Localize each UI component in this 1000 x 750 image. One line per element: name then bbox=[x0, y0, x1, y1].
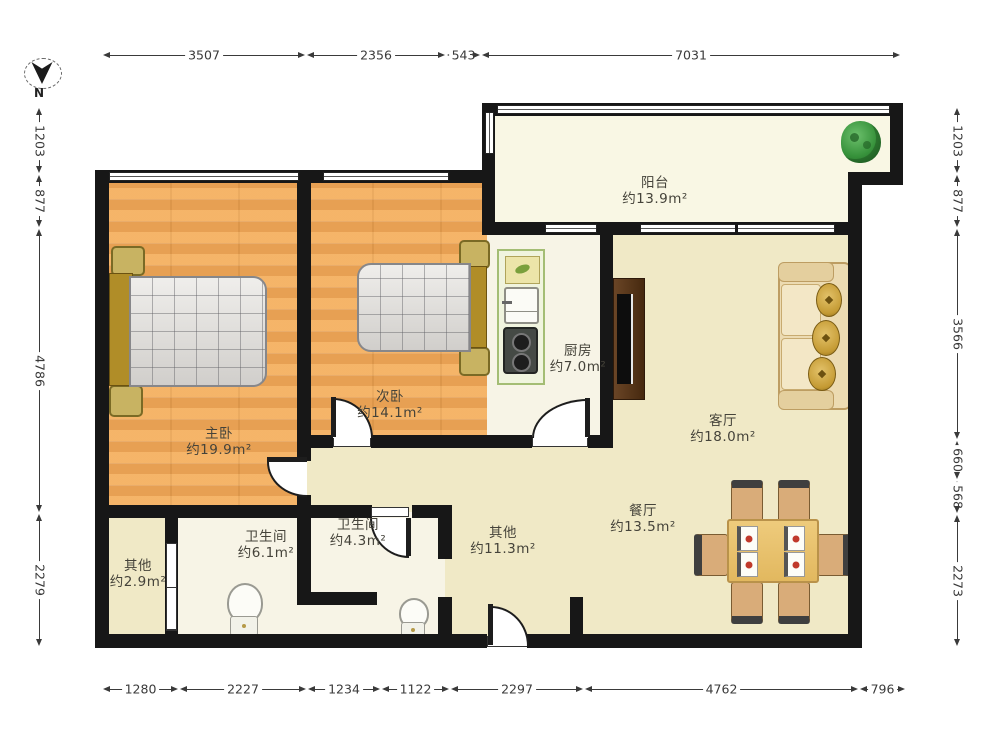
dim-right-5: 568 bbox=[952, 481, 964, 513]
room-area: 约4.3m² bbox=[293, 533, 423, 549]
room-name: 餐厅 bbox=[578, 503, 708, 519]
wall bbox=[570, 597, 583, 648]
room-label-hallway: 其他 约11.3m² bbox=[438, 525, 568, 557]
nightstand bbox=[109, 385, 143, 417]
room-area: 约19.9m² bbox=[154, 442, 284, 458]
dim-right-4: 660 bbox=[952, 441, 964, 479]
room-label-dining: 餐厅 约13.5m² bbox=[578, 503, 708, 535]
dim-value: 568 bbox=[951, 482, 966, 512]
dining-chair bbox=[731, 582, 763, 624]
dim-value: 2356 bbox=[357, 48, 395, 63]
door-threshold bbox=[371, 507, 409, 517]
compass-north-label: N bbox=[34, 86, 44, 100]
dim-value: 1122 bbox=[397, 682, 435, 697]
wall bbox=[438, 597, 452, 648]
kitchen-sink bbox=[504, 287, 539, 324]
fish-icon bbox=[514, 263, 531, 276]
room-name: 客厅 bbox=[658, 413, 788, 429]
window bbox=[545, 224, 597, 233]
room-label-living: 客厅 约18.0m² bbox=[658, 413, 788, 445]
place-setting bbox=[784, 552, 805, 577]
window bbox=[323, 172, 449, 181]
dim-value: 3507 bbox=[185, 48, 223, 63]
wall bbox=[95, 634, 487, 648]
dim-bottom-7: 796 bbox=[860, 684, 905, 696]
wall bbox=[297, 435, 333, 448]
window bbox=[497, 105, 890, 114]
dim-bottom-1: 1280 bbox=[103, 684, 178, 696]
room-area: 约14.1m² bbox=[325, 405, 455, 421]
dining-chair bbox=[817, 534, 851, 576]
wall bbox=[371, 435, 493, 448]
dining-chair bbox=[778, 582, 810, 624]
room-area: 约18.0m² bbox=[658, 429, 788, 445]
dining-chair bbox=[778, 480, 810, 522]
dim-bottom-2: 2227 bbox=[180, 684, 306, 696]
dim-value: 4762 bbox=[703, 682, 741, 697]
sofa-armrest bbox=[778, 390, 834, 410]
dim-bottom-6: 4762 bbox=[585, 684, 858, 696]
dim-right-1: 1203 bbox=[952, 108, 964, 173]
wall bbox=[848, 172, 862, 648]
dim-value: 2279 bbox=[33, 561, 48, 599]
dim-bottom-5: 2297 bbox=[451, 684, 583, 696]
dim-value: 1234 bbox=[325, 682, 363, 697]
dim-value: 7031 bbox=[672, 48, 710, 63]
room-area: 约13.5m² bbox=[578, 519, 708, 535]
dim-left-3: 4786 bbox=[34, 229, 46, 512]
room-name: 次卧 bbox=[325, 389, 455, 405]
dim-value: 1203 bbox=[33, 122, 48, 160]
entry-door-leaf bbox=[488, 604, 493, 645]
dining-chair bbox=[694, 534, 728, 576]
plant-leaf bbox=[863, 141, 871, 149]
dim-right-2: 877 bbox=[952, 175, 964, 227]
room-label-master: 主卧 约19.9m² bbox=[154, 426, 284, 458]
dim-value: 2297 bbox=[498, 682, 536, 697]
wall bbox=[600, 222, 613, 448]
room-area: 约2.9m² bbox=[73, 574, 203, 590]
place-setting bbox=[737, 552, 758, 577]
cutting-board bbox=[505, 256, 540, 284]
room-area: 约7.0m² bbox=[513, 359, 643, 375]
room-label-bath-small: 卫生间 约4.3m² bbox=[293, 517, 423, 549]
dim-value: 877 bbox=[951, 186, 966, 216]
dim-top-4: 7031 bbox=[482, 50, 900, 62]
balcony-floor-lower bbox=[489, 110, 852, 228]
dim-value: 2227 bbox=[224, 682, 262, 697]
dim-value: 2273 bbox=[951, 562, 966, 600]
wall bbox=[480, 435, 532, 448]
door-leaf bbox=[585, 398, 590, 437]
room-label-storage: 其他 约2.9m² bbox=[73, 558, 203, 590]
room-label-balcony: 阳台 约13.9m² bbox=[590, 175, 720, 207]
faucet-icon bbox=[502, 301, 512, 304]
plant-leaf bbox=[850, 133, 859, 142]
dim-bottom-4: 1122 bbox=[382, 684, 449, 696]
sink-divider bbox=[506, 311, 537, 312]
nightstand bbox=[111, 246, 145, 276]
toilet-tank bbox=[230, 616, 258, 636]
dim-value: 877 bbox=[33, 186, 48, 216]
room-name: 厨房 bbox=[513, 343, 643, 359]
room-name: 主卧 bbox=[154, 426, 284, 442]
dim-value: 660 bbox=[951, 445, 966, 475]
plant-icon bbox=[841, 121, 881, 163]
room-area: 约13.9m² bbox=[590, 191, 720, 207]
dim-value: 543 bbox=[449, 48, 479, 63]
room-name: 卫生间 bbox=[293, 517, 423, 533]
window bbox=[109, 172, 299, 181]
room-name: 其他 bbox=[438, 525, 568, 541]
sofa-pillow bbox=[808, 357, 836, 391]
place-setting bbox=[784, 526, 805, 551]
dim-left-4: 2279 bbox=[34, 514, 46, 646]
sofa-pillow bbox=[816, 283, 842, 317]
master-bed bbox=[129, 276, 267, 387]
window bbox=[485, 112, 494, 154]
sofa-pillow bbox=[812, 320, 840, 356]
dim-right-3: 3566 bbox=[952, 229, 964, 439]
window-mullion bbox=[735, 224, 738, 233]
dim-bottom-3: 1234 bbox=[308, 684, 380, 696]
wall bbox=[297, 170, 311, 461]
room-label-second: 次卧 约14.1m² bbox=[325, 389, 455, 421]
dim-value: 796 bbox=[868, 682, 898, 697]
place-setting bbox=[737, 526, 758, 551]
room-label-kitchen: 厨房 约7.0m² bbox=[513, 343, 643, 375]
dim-value: 1203 bbox=[951, 122, 966, 160]
dim-right-6: 2273 bbox=[952, 515, 964, 646]
sofa-armrest bbox=[778, 262, 834, 282]
dim-top-1: 3507 bbox=[103, 50, 305, 62]
room-name: 阳台 bbox=[590, 175, 720, 191]
floor-plan: N bbox=[0, 0, 1000, 750]
second-bed bbox=[357, 263, 471, 352]
door-threshold bbox=[532, 437, 588, 447]
dim-top-3: 543 bbox=[447, 50, 480, 62]
wall bbox=[297, 592, 377, 605]
dim-value: 1280 bbox=[122, 682, 160, 697]
dim-value: 4786 bbox=[33, 352, 48, 390]
room-name: 其他 bbox=[73, 558, 203, 574]
dim-left-2: 877 bbox=[34, 175, 46, 227]
room-area: 约11.3m² bbox=[438, 541, 568, 557]
dim-left-1: 1203 bbox=[34, 108, 46, 173]
dim-value: 3566 bbox=[951, 315, 966, 353]
dining-chair bbox=[731, 480, 763, 522]
door-threshold bbox=[333, 437, 371, 447]
dim-top-2: 2356 bbox=[307, 50, 445, 62]
